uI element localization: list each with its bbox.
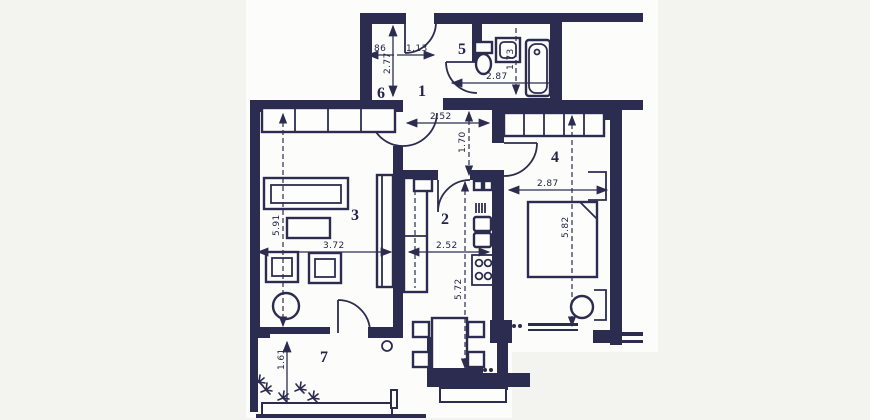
toilet-bowl (476, 54, 491, 74)
coffee-table (287, 218, 330, 238)
sink-basin (484, 181, 492, 190)
floor-plan-page: 86 1.13 2.77 2.87 1.73 2.52 1.70 2.87 5.… (0, 0, 870, 420)
bedroom-chair (571, 296, 593, 318)
planter-box (262, 403, 392, 415)
toilet-tank (475, 42, 492, 53)
armchair (266, 252, 298, 282)
planter-end (391, 390, 397, 408)
dim-label: 5.82 (561, 216, 571, 238)
floor-plan-drawing: 86 1.13 2.77 2.87 1.73 2.52 1.70 2.87 5.… (0, 0, 870, 420)
dim-label: 1.70 (458, 131, 468, 153)
bed (528, 202, 597, 277)
kitchen-window-sill (440, 388, 506, 402)
dim-label: 2.87 (537, 179, 559, 189)
dim-label: 2.52 (436, 241, 458, 251)
counter-sink-unit (414, 179, 432, 191)
room-label-bathroom: 5 (458, 41, 466, 58)
chair (468, 322, 484, 337)
chair (413, 352, 429, 367)
round-table (273, 293, 299, 319)
table-shadow (432, 368, 483, 374)
room-label-hallway: 1 (418, 83, 426, 100)
dining-table (432, 318, 467, 370)
dim-label: 2.77 (383, 52, 393, 74)
dim-label: 3.72 (323, 241, 345, 251)
armchair (309, 253, 341, 283)
fridge (474, 233, 491, 247)
dim-label: 1.13 (406, 44, 428, 54)
bedroom-wardrobe (504, 113, 604, 136)
paper-cut-corner (512, 352, 658, 418)
sofa (264, 178, 348, 209)
chair (413, 322, 429, 337)
dim-label: 1.73 (506, 48, 516, 70)
dim-label: 1.61 (277, 348, 287, 370)
dim-label: 2.87 (486, 72, 508, 82)
dim-label: 2.52 (430, 112, 452, 122)
room-label-balcony: 7 (320, 349, 328, 366)
dim-label: 5.72 (454, 278, 464, 300)
oven (474, 217, 491, 231)
room-label-bedroom: 4 (551, 149, 559, 166)
chair (468, 352, 484, 367)
dim-label: 5.91 (272, 214, 282, 236)
room-label-kitchen: 2 (441, 211, 449, 228)
tall-cabinet (377, 175, 393, 287)
sink-basin (474, 181, 482, 190)
room-label-living-room: 3 (351, 207, 359, 224)
room-label-closet: 6 (377, 85, 385, 102)
